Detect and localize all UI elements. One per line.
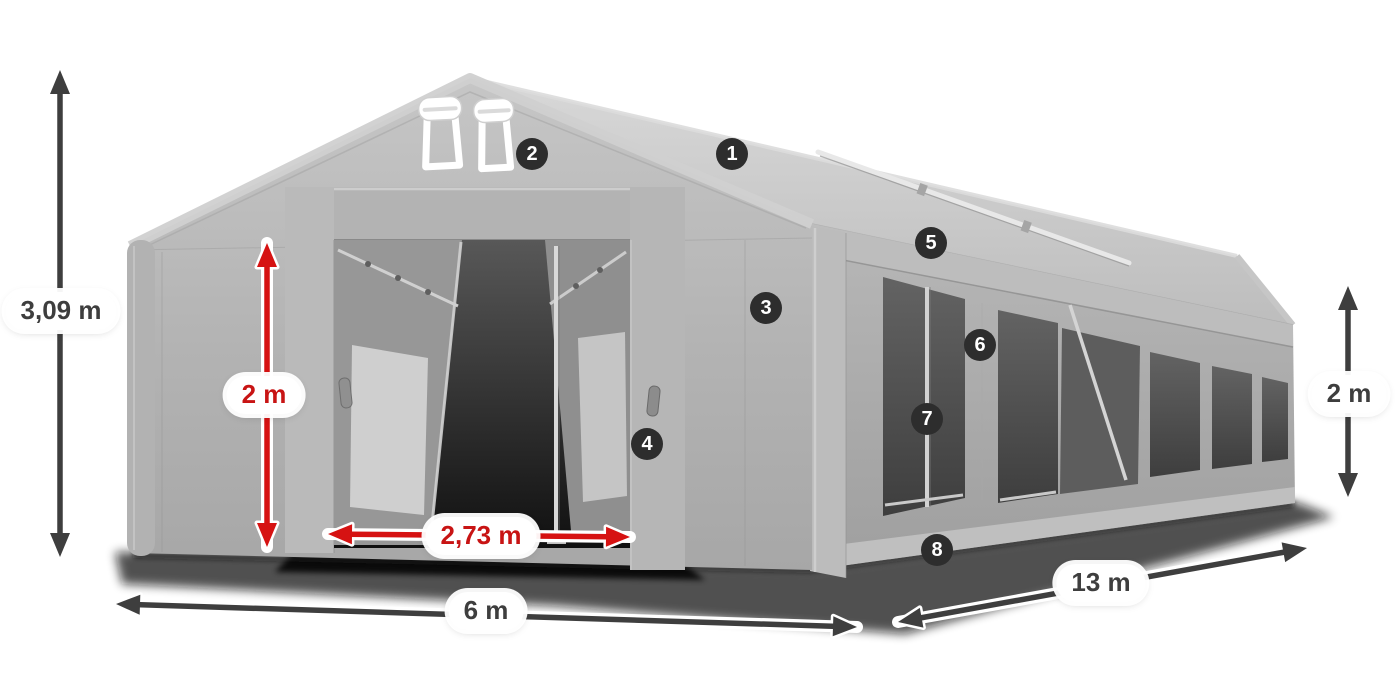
vent-roll-shade xyxy=(425,108,456,110)
callout-badge-8: 8 xyxy=(921,534,953,566)
door-frame-column-left xyxy=(285,187,334,553)
dimension-pill-entrance-width: 2,73 m xyxy=(426,517,537,555)
arrowhead xyxy=(116,595,140,615)
door-clip xyxy=(573,283,579,289)
dimension-pill-width: 6 m xyxy=(449,592,524,630)
callout-badge-3: 3 xyxy=(750,292,782,324)
rolled-door-left-window xyxy=(350,345,428,515)
vent-roll-shade xyxy=(480,110,509,112)
door-frame-column-right xyxy=(630,187,685,570)
door-clip xyxy=(597,267,603,273)
callout-badge-7: 7 xyxy=(911,403,943,435)
callout-badge-4: 4 xyxy=(631,428,663,460)
door-clip xyxy=(365,261,371,267)
arrowhead xyxy=(50,70,70,94)
side-window xyxy=(1150,352,1200,477)
side-mesh-window xyxy=(998,310,1058,503)
callout-badge-2: 2 xyxy=(516,138,548,170)
callout-badge-1: 1 xyxy=(716,138,748,170)
door-clip xyxy=(395,275,401,281)
dimension-pill-entrance-height: 2 m xyxy=(227,376,302,414)
rolled-door-right-window xyxy=(578,332,627,502)
callout-badge-5: 5 xyxy=(915,227,947,259)
arrowhead xyxy=(50,533,70,557)
side-window xyxy=(1212,366,1252,469)
side-open-section xyxy=(1060,328,1140,494)
left-corner-column xyxy=(127,240,155,556)
door-lintel xyxy=(285,187,683,240)
side-mesh-window xyxy=(883,277,965,516)
tent-illustration xyxy=(0,0,1400,700)
dimension-pill-total-height: 3,09 m xyxy=(6,292,117,330)
door-clip xyxy=(425,289,431,295)
arrowhead xyxy=(1338,473,1358,497)
callout-badge-6: 6 xyxy=(964,329,996,361)
arrowhead xyxy=(1338,286,1358,310)
side-window xyxy=(1262,377,1288,462)
dimension-pill-side-height: 2 m xyxy=(1312,375,1387,413)
dimension-pill-length: 13 m xyxy=(1056,564,1145,602)
tent-dimension-diagram: 3,09 m2 m2,73 m6 m13 m2 m 12345678 xyxy=(0,0,1400,700)
